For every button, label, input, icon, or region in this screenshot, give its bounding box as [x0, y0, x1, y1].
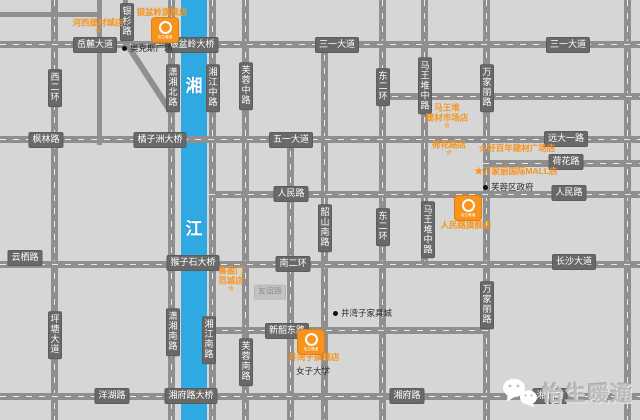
- poi-dot: [122, 46, 127, 51]
- store-label-line: 马王堆: [426, 102, 469, 112]
- store-label-line: 银盆岭旗舰店: [136, 7, 187, 17]
- store-label-line: 河西建材城店: [72, 17, 123, 27]
- road-label: 韶山南路: [318, 204, 332, 252]
- brand-logo-marker: 怡生暖通: [298, 330, 324, 354]
- poi-text: 芙蓉区政府: [491, 181, 534, 193]
- road-label: 枫林路: [28, 132, 63, 148]
- store-label: ☆好百年建材广场店: [479, 143, 556, 153]
- store-label: 喜盈门范城店☆: [218, 265, 244, 292]
- road-south-2nd-ring: [0, 261, 640, 268]
- road-label: 马王堆中路: [421, 201, 435, 258]
- river-label-top: 湘: [186, 72, 203, 97]
- poi-text: 井湾子家具城: [341, 307, 392, 319]
- road-label: 万家丽路: [480, 64, 494, 112]
- brand-logo-text: 怡生暖通: [461, 213, 475, 217]
- road-label: 潇湘南路: [166, 308, 180, 356]
- store-label: 马王堆建材市场店☆: [426, 102, 469, 129]
- brand-logo-ring-icon: [305, 333, 318, 346]
- brand-logo-text: 怡生暖通: [158, 35, 172, 39]
- road-label: 万家丽路: [480, 281, 494, 329]
- road-label: 橘子洲大桥: [133, 132, 186, 148]
- road-label: 云栖路: [7, 250, 42, 266]
- road-label: 长沙大道: [552, 254, 596, 270]
- brand-logo-marker: 怡生暖通: [152, 18, 178, 42]
- poi-label: 奥克斯广场: [122, 42, 173, 54]
- road-label: 西二环: [48, 69, 62, 107]
- road-label: 湘江中路: [206, 64, 220, 112]
- road-east-edge: [624, 0, 631, 420]
- wechat-icon: [501, 377, 539, 408]
- brand-logo-ring-icon: [462, 199, 475, 212]
- store-label: 荷花路店☆: [432, 139, 466, 156]
- road-label: 潇湘北路: [166, 64, 180, 112]
- store-star-icon: ☆: [218, 286, 244, 293]
- road-label: 三一大道: [546, 37, 590, 53]
- road-label: 洋湖路: [94, 388, 129, 404]
- road-unnamed-top: [0, 12, 102, 17]
- store-label-line: 建材市场店: [426, 113, 469, 123]
- road-xiaoxiang: [168, 0, 175, 420]
- brand-logo-text: 怡生暖通: [304, 347, 318, 351]
- watermark: 怡生暖通: [501, 377, 634, 408]
- road-label: 东二环: [376, 208, 390, 246]
- road-label: 东二环: [376, 68, 390, 106]
- road-xinshao-east: [209, 327, 490, 334]
- poi-text: 奥克斯广场: [130, 42, 173, 54]
- poi-label: 女子大学: [296, 365, 330, 377]
- store-star-icon: ☆: [432, 150, 466, 157]
- store-label: ★万家丽国际MALL店: [474, 166, 557, 176]
- river-label-bottom: 江: [186, 215, 203, 240]
- store-star-icon: ☆: [426, 123, 469, 130]
- minor-road-label: 友谊路: [254, 285, 286, 300]
- store-label: 河西建材城店☆: [72, 17, 123, 34]
- road-label: 人民路: [273, 186, 308, 202]
- road-label: 芙蓉南路: [239, 338, 253, 386]
- changsha-store-map: 湘 江 怡生暖通 岳麓大道银盆岭大桥三一大道三一大道枫林路橘子洲大桥五一大道远大…: [0, 0, 640, 420]
- brand-logo-marker: 怡生暖通: [455, 196, 481, 220]
- road-label: 坪塘大道: [48, 311, 62, 359]
- poi-dot: [483, 185, 488, 190]
- store-label-line: 喜盈门: [218, 265, 244, 275]
- road-label: 三一大道: [315, 37, 359, 53]
- store-label: 银盆岭旗舰店: [136, 7, 187, 17]
- store-label-line: 范城店: [218, 276, 244, 286]
- poi-text: 女子大学: [296, 365, 330, 377]
- road-label: 人民路: [551, 185, 586, 201]
- store-label-line: 人民路旗舰店: [440, 220, 491, 230]
- road-label: 岳麓大道: [73, 37, 117, 53]
- poi-label: 井湾子家具城: [333, 307, 392, 319]
- poi-dot: [333, 311, 338, 316]
- road-shuyuan: [287, 138, 294, 420]
- road-wanjiali: [483, 0, 490, 420]
- road-label: 猴子石大桥: [166, 255, 219, 271]
- road-label: 湘府路: [389, 388, 424, 404]
- store-label-line: ★万家丽国际MALL店: [474, 166, 557, 176]
- road-label: 芙蓉中路: [239, 62, 253, 110]
- store-label-line: 荷花路店: [432, 139, 466, 149]
- road-label: 五一大道: [269, 132, 313, 148]
- road-label: 南二环: [275, 256, 310, 272]
- store-label: 人民路旗舰店: [440, 220, 491, 230]
- road-label: 湘江南路: [202, 316, 216, 364]
- road-label: 湘府路大桥: [164, 388, 217, 404]
- store-star-icon: ☆: [72, 28, 123, 35]
- poi-label: 芙蓉区政府: [483, 181, 534, 193]
- brand-logo-ring-icon: [159, 21, 172, 34]
- watermark-brand-text: 怡生暖通: [542, 378, 634, 408]
- store-label-line: ☆好百年建材广场店: [479, 143, 556, 153]
